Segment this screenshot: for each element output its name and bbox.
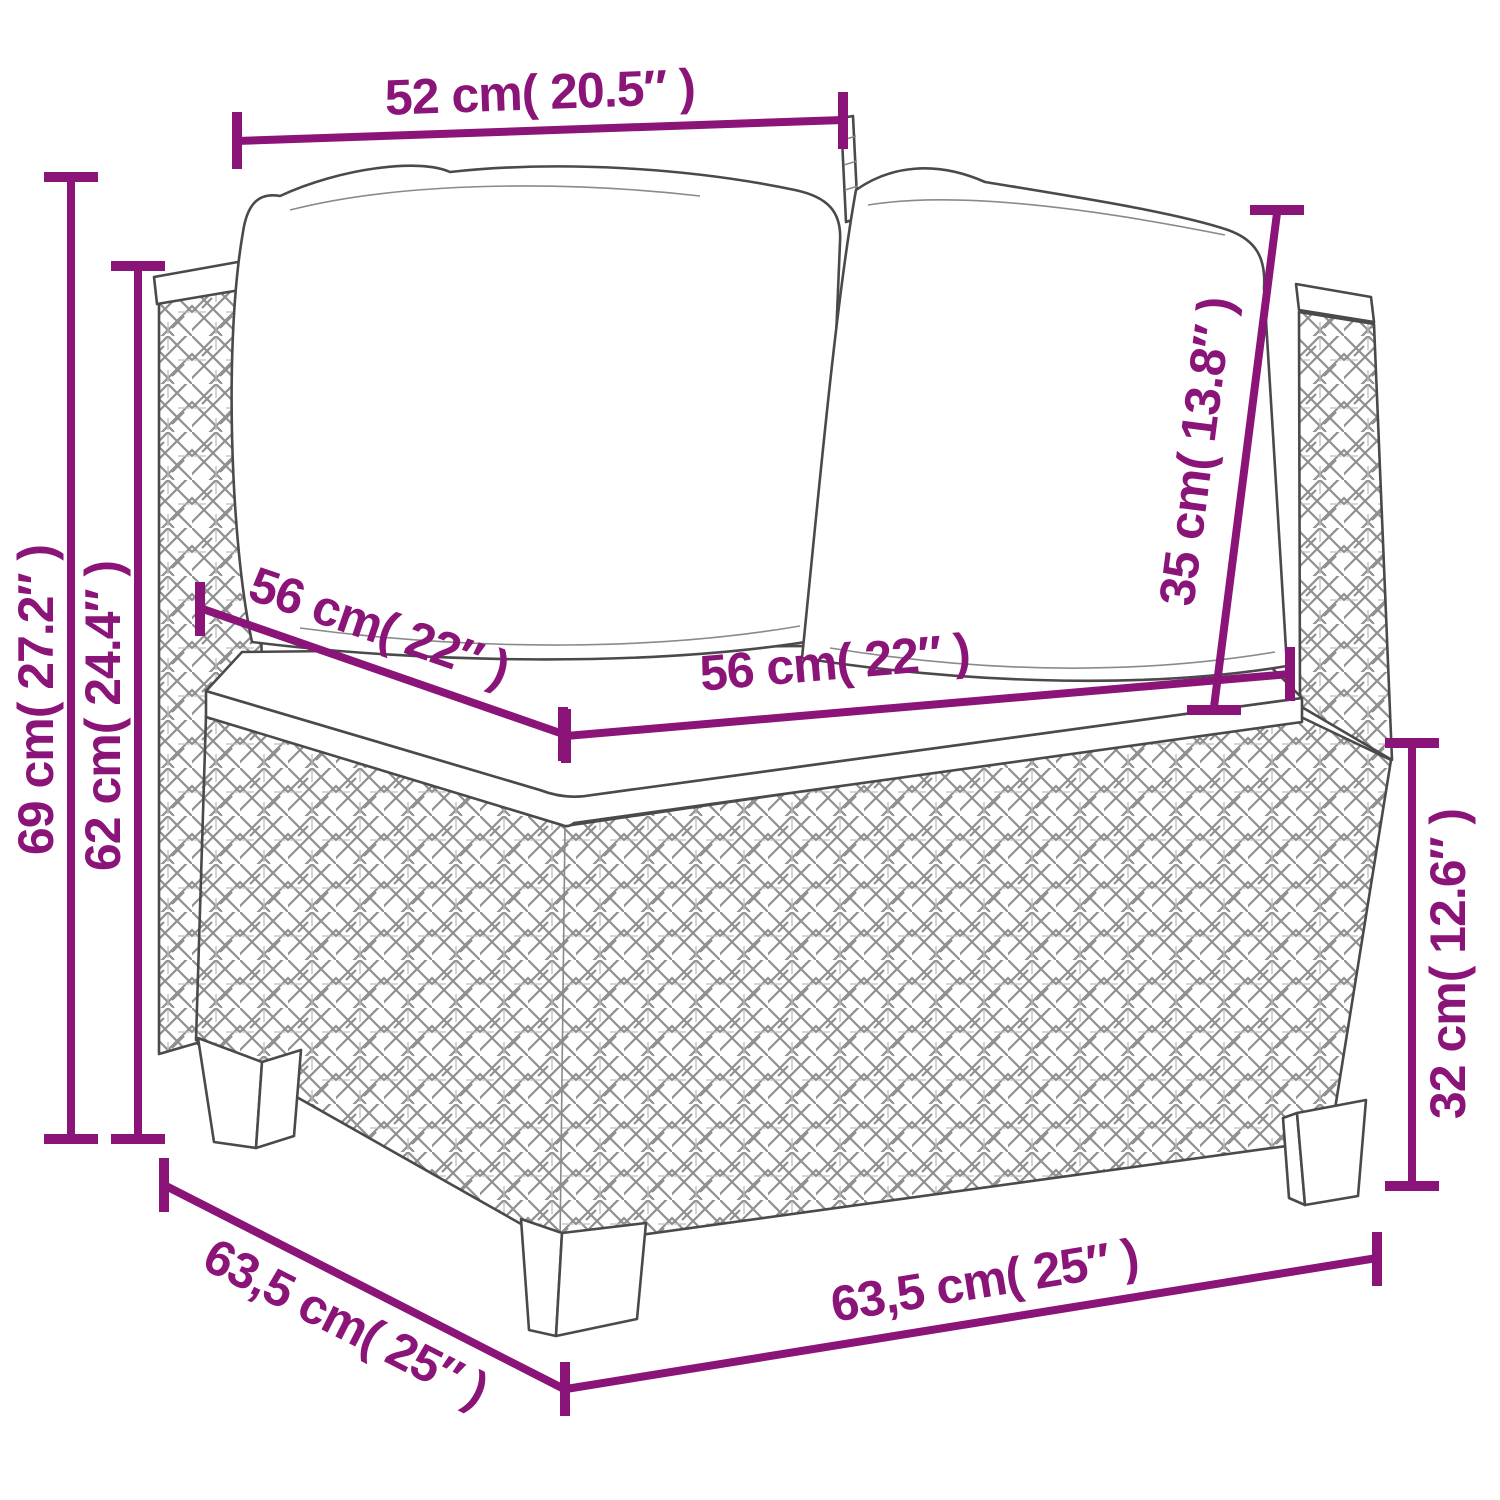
dim-overall-width: 63,5 cm( 25″ ) <box>566 1228 1377 1389</box>
leg-back-left-side <box>256 1050 301 1148</box>
dim-label: 62 cm( 24.4″ ) <box>75 561 131 871</box>
base-box <box>196 716 1391 1246</box>
dim-label: 52 cm( 20.5″ ) <box>384 59 696 126</box>
dim-label: 63,5 cm( 25″ ) <box>827 1228 1142 1333</box>
dim-label: 69 cm( 27.2″ ) <box>8 545 64 855</box>
dim-base-height: 32 cm( 12.6″ ) <box>1385 743 1476 1186</box>
diagram-canvas: 52 cm( 20.5″ ) 69 cm( 27.2″ ) 62 cm( 24.… <box>0 0 1500 1500</box>
dimension-diagram: 52 cm( 20.5″ ) 69 cm( 27.2″ ) 62 cm( 24.… <box>0 0 1500 1500</box>
dim-backrest-top-width: 52 cm( 20.5″ ) <box>237 59 843 169</box>
dim-label: 32 cm( 12.6″ ) <box>1420 809 1476 1119</box>
leg-right-face <box>1297 1100 1366 1205</box>
right-backrest-panel <box>1299 312 1392 760</box>
dim-label: 63,5 cm( 25″ ) <box>195 1227 497 1418</box>
dim-armrest-height: 62 cm( 24.4″ ) <box>75 266 165 1139</box>
dim-line <box>237 120 843 141</box>
leg-front-corner-face <box>556 1223 646 1336</box>
